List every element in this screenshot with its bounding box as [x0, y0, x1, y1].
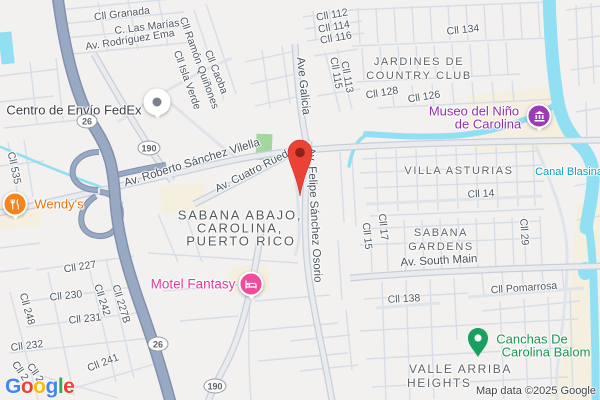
- motel-fantasy-label[interactable]: Motel Fantasy: [151, 277, 236, 292]
- google-logo-letter: G: [5, 375, 21, 398]
- neighborhood-label-sabana-gardens-line2: GARDENS: [408, 241, 474, 253]
- fedex-poi-label[interactable]: Centro de Envío FedEx: [6, 103, 141, 118]
- museo-marker[interactable]: [527, 104, 552, 129]
- wendys-marker[interactable]: [3, 192, 28, 217]
- museo-label-line2[interactable]: de Carolina: [455, 117, 522, 132]
- restaurant-utensils-icon: [9, 198, 21, 210]
- neighborhood-label-jardines-line1: JARDINES DE: [374, 56, 464, 68]
- map-attribution: Map data ©2025 Google: [476, 385, 596, 397]
- google-logo-letter: o: [33, 375, 45, 398]
- wendys-label[interactable]: Wendy's: [34, 197, 83, 212]
- google-logo-letter: g: [46, 375, 58, 398]
- google-logo[interactable]: Google: [5, 375, 74, 399]
- city-label-line3: PUERTO RICO: [186, 234, 296, 249]
- neighborhood-label-sabana-gardens-line1: SABANA: [414, 227, 468, 239]
- destination-pin[interactable]: [287, 139, 313, 198]
- route-shield-190-south: 190: [203, 379, 226, 394]
- neighborhood-label-villa-asturias: VILLA ASTURIAS: [404, 165, 513, 177]
- neighborhood-label-valle-arriba-line2: HEIGHTS: [407, 376, 472, 390]
- map-canvas[interactable]: Cll Granada C. Las Marías Av. Rodríguez …: [0, 0, 600, 400]
- street-label-cll-138: Cll 138: [387, 292, 420, 306]
- water-label-canal-blasina: Canal Blasina: [535, 166, 600, 178]
- canchas-label-line2[interactable]: Carolina Balom: [502, 345, 591, 360]
- generic-poi-dot-icon: [153, 98, 162, 107]
- fedex-poi-marker[interactable]: [144, 89, 171, 116]
- canchas-pin-marker[interactable]: [467, 327, 489, 359]
- bed-icon: [245, 278, 258, 291]
- street-label-cll-14: Cll 14: [467, 187, 494, 200]
- neighborhood-label-valle-arriba-line1: VALLE ARRIBA: [409, 362, 512, 376]
- google-logo-letter: o: [21, 375, 33, 398]
- route-shield-26-south: 26: [148, 337, 169, 352]
- street-label-cll-29: Cll 29: [517, 218, 531, 246]
- route-shield-26-north: 26: [77, 114, 98, 129]
- museum-icon: [533, 110, 545, 122]
- google-logo-letter: e: [63, 375, 74, 398]
- route-shield-190-north: 190: [137, 141, 160, 156]
- motel-fantasy-marker[interactable]: [239, 272, 264, 297]
- neighborhood-label-jardines-line2: COUNTRY CLUB: [366, 70, 472, 82]
